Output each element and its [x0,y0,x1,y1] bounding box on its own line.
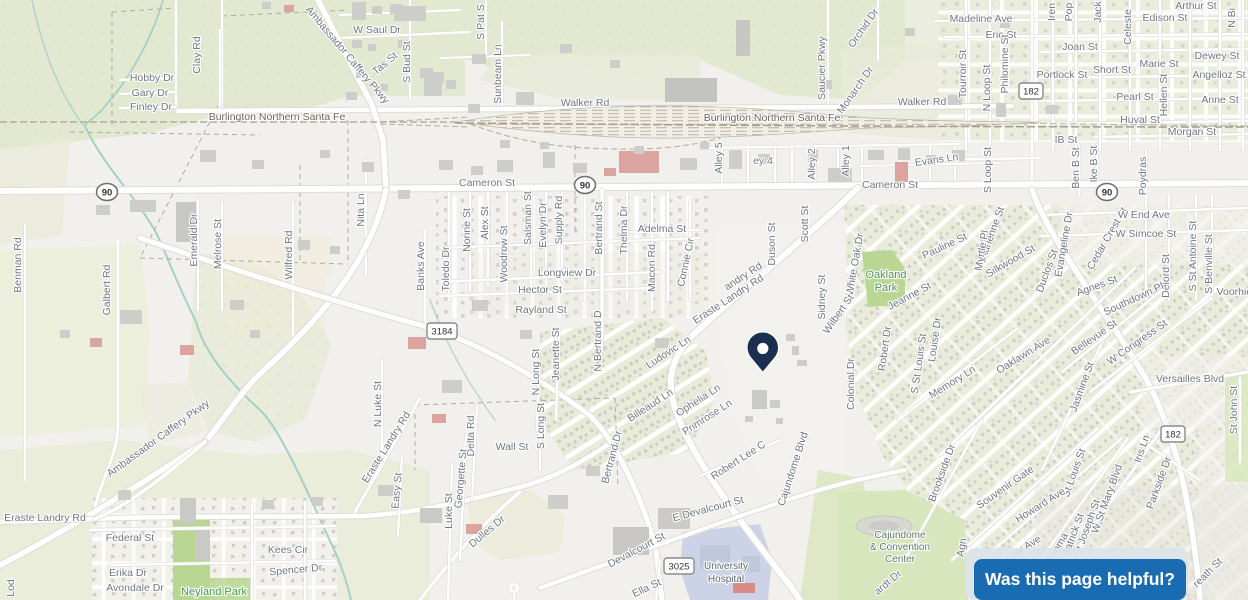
svg-text:90: 90 [1102,188,1113,199]
svg-text:Emerald Dr: Emerald Dr [188,213,200,267]
svg-text:Hobby Dr: Hobby Dr [130,72,175,84]
svg-text:ey 4: ey 4 [753,155,773,167]
svg-text:Short St: Short St [1093,64,1131,76]
svg-text:Ben B St: Ben B St [1070,147,1082,189]
svg-text:Wall St: Wall St [496,441,529,453]
svg-text:S Long St: S Long St [535,403,547,449]
svg-text:Bertrand St: Bertrand St [593,201,605,254]
svg-text:Morgan St: Morgan St [1168,126,1217,138]
svg-text:Luke St: Luke St [443,493,455,529]
svg-text:Joan St: Joan St [1062,41,1098,53]
svg-text:182: 182 [1023,87,1039,98]
svg-text:Banks Ave: Banks Ave [415,241,427,291]
svg-text:Melrose St: Melrose St [212,219,224,269]
svg-text:Saucier Pkwy: Saucier Pkwy [816,35,828,99]
svg-text:Jack: Jack [1092,0,1104,22]
svg-text:Ike B St: Ike B St [1088,146,1100,183]
svg-text:Alley 1: Alley 1 [840,145,852,177]
svg-text:Burlington Northern Santa Fe: Burlington Northern Santa Fe [704,112,841,124]
svg-text:S St Antoine St: S St Antoine St [1187,221,1199,292]
svg-text:Eraste Landry Rd: Eraste Landry Rd [4,512,86,524]
svg-text:Macon Rd: Macon Rd [646,244,658,292]
svg-text:Dewey St: Dewey St [1195,50,1240,62]
svg-text:N Bi: N Bi [1226,8,1238,28]
svg-text:Anne St: Anne St [1201,94,1238,106]
svg-text:Huval St: Huval St [1120,114,1160,126]
svg-text:Gary Dr: Gary Dr [132,87,169,99]
svg-text:Benman Rd: Benman Rd [12,237,24,293]
svg-text:Finley Dr: Finley Dr [130,101,173,113]
svg-text:Celeste: Celeste [1122,9,1134,45]
svg-text:Sunbeam Ln: Sunbeam Ln [492,44,504,104]
svg-text:Versailles Blvd: Versailles Blvd [1156,373,1224,385]
svg-text:& Convention: & Convention [870,542,930,553]
svg-text:Portlock St: Portlock St [1037,69,1088,81]
svg-text:Edison St: Edison St [1143,12,1188,24]
svg-text:W Saul Dr: W Saul Dr [353,24,401,36]
svg-text:3025: 3025 [668,562,689,573]
svg-text:Cajundome: Cajundome [874,530,926,541]
svg-text:N Luke St: N Luke St [372,381,384,427]
svg-text:Philomine St: Philomine St [999,34,1011,93]
svg-text:3184: 3184 [431,327,452,338]
svg-text:Duson St: Duson St [766,222,778,265]
svg-text:Norine St: Norine St [461,208,473,252]
svg-text:Scott St: Scott St [799,206,811,243]
svg-text:Tourroir St: Tourroir St [957,50,969,99]
svg-text:Pearl St: Pearl St [1116,91,1153,103]
svg-text:Federal St: Federal St [106,532,155,544]
svg-text:Wilfred Rd: Wilfred Rd [283,230,295,279]
svg-text:Center: Center [885,554,916,565]
svg-text:Madeline Ave: Madeline Ave [950,13,1013,25]
svg-text:Lod: Lod [5,579,17,597]
svg-text:S Benville St: S Benville St [1203,234,1215,294]
svg-text:90: 90 [102,188,113,199]
svg-text:Park: Park [875,282,898,294]
svg-text:Jeanette St: Jeanette St [550,327,562,380]
svg-text:Woodrow St: Woodrow St [498,225,510,282]
svg-text:IB St: IB St [1055,134,1078,146]
svg-text:Toledo Dr: Toledo Dr [440,246,452,291]
svg-text:Iren: Iren [1046,3,1058,21]
svg-text:Supply Rd: Supply Rd [553,196,565,245]
svg-text:Erika Dr: Erika Dr [109,567,147,579]
svg-text:N Loop St: N Loop St [981,65,993,112]
svg-text:Walker Rd: Walker Rd [898,96,947,108]
svg-text:W End Ave: W End Ave [1118,209,1170,221]
svg-text:Neyland Park: Neyland Park [181,586,248,598]
svg-text:Alley 5: Alley 5 [713,142,725,174]
svg-text:Sidney St: Sidney St [816,274,828,319]
svg-text:Avondale Dr: Avondale Dr [106,582,164,594]
svg-text:Evelyn Dr: Evelyn Dr [537,202,549,248]
svg-text:University: University [704,561,748,572]
svg-text:Poydras: Poydras [1137,157,1149,196]
svg-text:Cameron St: Cameron St [459,177,515,189]
svg-text:S Loop St: S Loop St [982,147,994,193]
svg-text:182: 182 [1165,430,1181,441]
svg-text:N Bertrand D: N Bertrand D [592,310,604,372]
svg-text:Pop: Pop [1063,3,1075,22]
svg-text:St John St: St John St [1228,386,1240,435]
svg-text:Clay Rd: Clay Rd [191,36,203,74]
svg-text:Colonial Dr: Colonial Dr [845,358,857,410]
svg-text:Longview Dr: Longview Dr [538,267,597,279]
svg-text:Hector St: Hector St [518,284,562,296]
svg-text:Adelma St: Adelma St [638,223,687,235]
svg-text:W Simcoe St: W Simcoe St [1116,228,1177,240]
svg-text:90: 90 [580,181,591,192]
svg-text:Walker Rd: Walker Rd [561,97,610,109]
svg-text:S Pat S: S Pat S [475,4,487,40]
svg-text:Angelloz St: Angelloz St [1192,69,1245,81]
svg-text:Oakland: Oakland [866,269,907,281]
svg-text:Marie St: Marie St [1139,58,1178,70]
svg-text:Nita Ln: Nita Ln [355,193,367,226]
svg-text:Rayland St: Rayland St [515,304,566,316]
svg-text:Arthur St: Arthur St [1175,0,1217,12]
svg-text:Salsman St: Salsman St [522,191,534,245]
svg-text:Thelma Dr: Thelma Dr [618,205,630,255]
svg-text:S Bud St: S Bud St [401,41,413,83]
svg-text:Burlington Northern Santa Fe: Burlington Northern Santa Fe [209,111,346,123]
svg-text:Voorhies: Voorhies [1217,286,1248,298]
svg-text:Hellen St: Hellen St [1158,74,1170,117]
svg-text:Hospital: Hospital [708,574,744,585]
svg-text:Alex St: Alex St [479,206,491,239]
svg-text:Cameron St: Cameron St [862,179,918,191]
svg-text:Kees Cir: Kees Cir [268,544,309,556]
svg-text:Galbert Rd: Galbert Rd [101,264,113,315]
svg-text:Alley 2: Alley 2 [806,148,818,180]
svg-text:N Long St: N Long St [530,349,542,396]
